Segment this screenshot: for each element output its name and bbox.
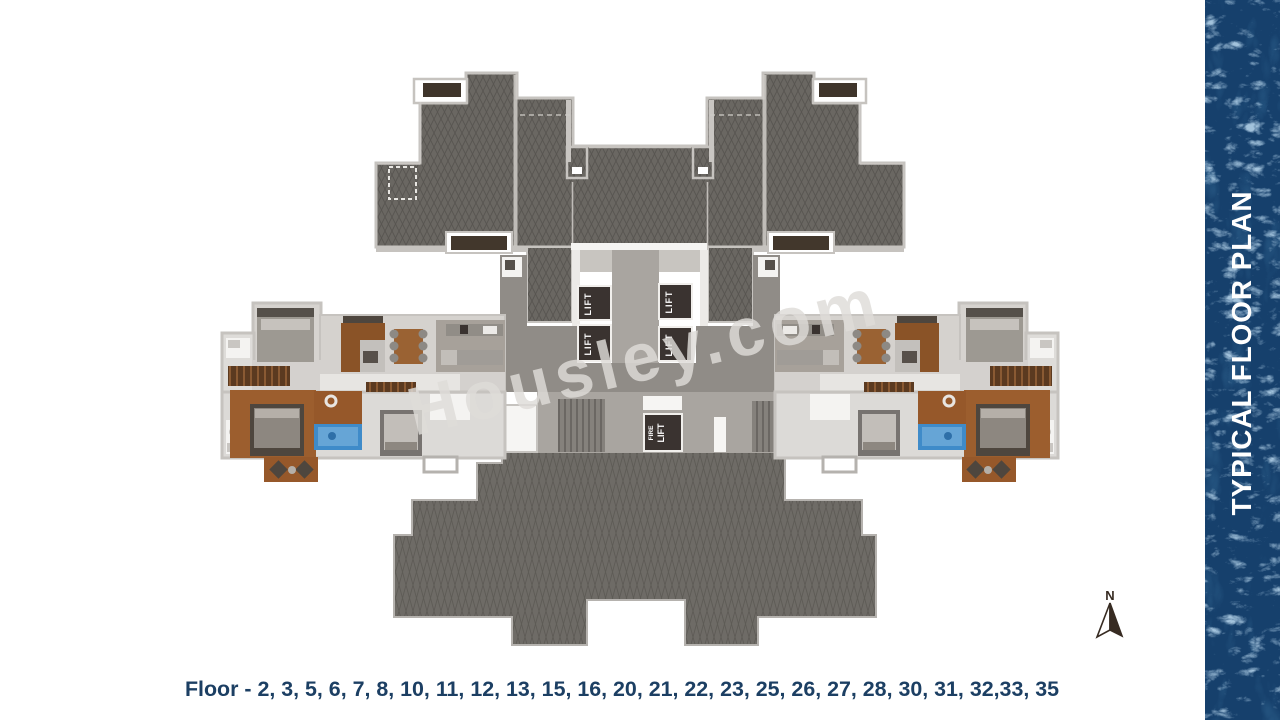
svg-text:LIFT: LIFT — [656, 423, 666, 442]
svg-text:FIRE: FIRE — [648, 425, 655, 440]
svg-text:TYPICAL FLOOR PLAN: TYPICAL FLOOR PLAN — [1226, 191, 1257, 516]
svg-text:Floor - 2, 3, 5, 6, 7, 8, 10,: Floor - 2, 3, 5, 6, 7, 8, 10, 11, 12, 13… — [185, 677, 1059, 701]
svg-text:LIFT: LIFT — [583, 293, 593, 316]
svg-text:N: N — [1105, 588, 1114, 603]
